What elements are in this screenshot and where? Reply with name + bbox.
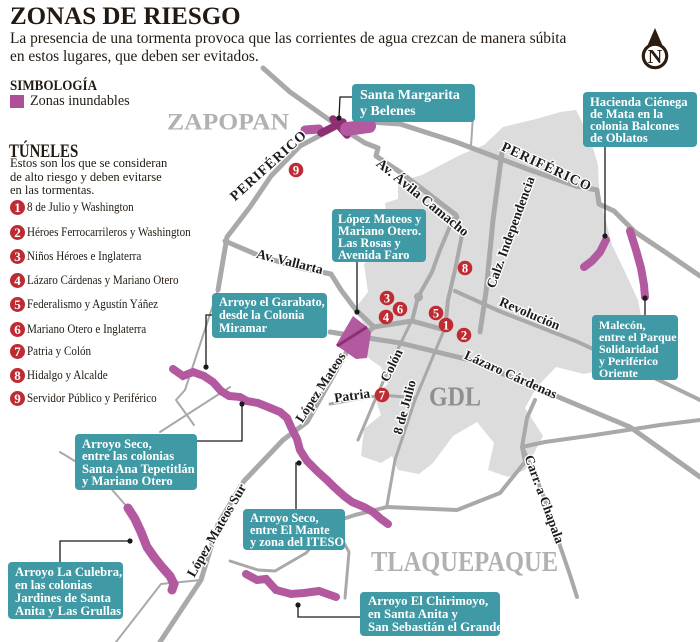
svg-text:2: 2 bbox=[461, 329, 467, 343]
svg-text:6: 6 bbox=[397, 303, 403, 317]
svg-text:TLAQUEPAQUE: TLAQUEPAQUE bbox=[371, 547, 558, 578]
svg-text:Carr. a Chapala: Carr. a Chapala bbox=[522, 453, 568, 546]
svg-text:ZAPOPAN: ZAPOPAN bbox=[167, 110, 289, 135]
svg-text:5: 5 bbox=[433, 307, 439, 321]
svg-text:8: 8 bbox=[462, 262, 468, 276]
svg-text:3: 3 bbox=[384, 292, 390, 306]
svg-text:Av. Vallarta: Av. Vallarta bbox=[255, 246, 325, 277]
svg-text:9: 9 bbox=[293, 164, 299, 178]
svg-text:Patria: Patria bbox=[333, 386, 371, 406]
svg-text:López Mateos: López Mateos bbox=[292, 349, 348, 425]
svg-text:GDL: GDL bbox=[429, 382, 481, 412]
svg-text:7: 7 bbox=[379, 389, 385, 403]
svg-text:N: N bbox=[648, 46, 663, 68]
svg-text:1: 1 bbox=[443, 319, 449, 333]
svg-text:4: 4 bbox=[383, 311, 390, 325]
